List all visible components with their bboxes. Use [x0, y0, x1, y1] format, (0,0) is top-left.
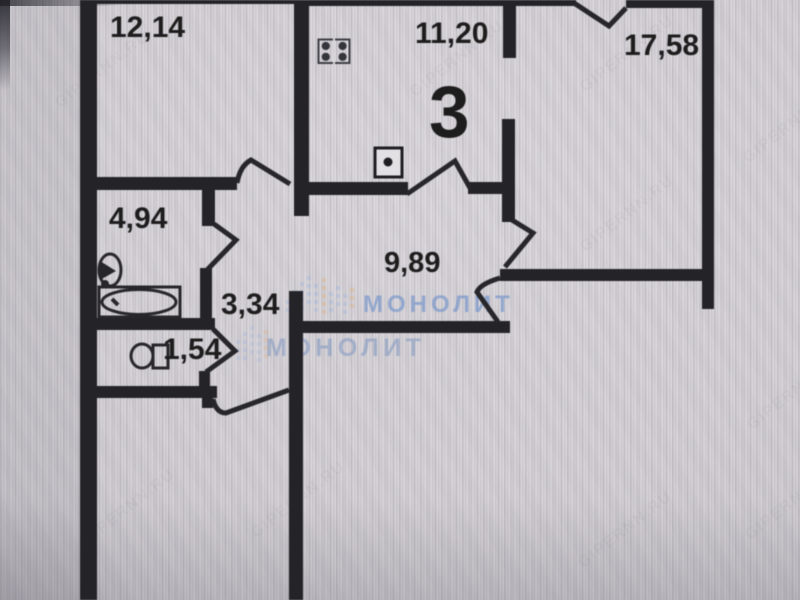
svg-text:11,20: 11,20: [415, 17, 488, 50]
svg-text:17,58: 17,58: [624, 29, 699, 62]
svg-text:GIPERNN.RU: GIPERNN.RU: [577, 171, 677, 255]
svg-text:3: 3: [429, 72, 470, 153]
svg-text:9,89: 9,89: [384, 247, 440, 279]
svg-text:GIPERNN.RU: GIPERNN.RU: [742, 459, 800, 543]
svg-text:GIPERNN.RU: GIPERNN.RU: [575, 487, 675, 571]
svg-text:1,54: 1,54: [163, 333, 222, 366]
svg-text:3,34: 3,34: [221, 288, 280, 321]
svg-text:GIPERNN.RU: GIPERNN.RU: [740, 82, 800, 166]
svg-text:GIPERNN.RU: GIPERNN.RU: [744, 349, 800, 433]
svg-text:4,94: 4,94: [109, 202, 168, 235]
svg-text:12,14: 12,14: [110, 11, 185, 44]
